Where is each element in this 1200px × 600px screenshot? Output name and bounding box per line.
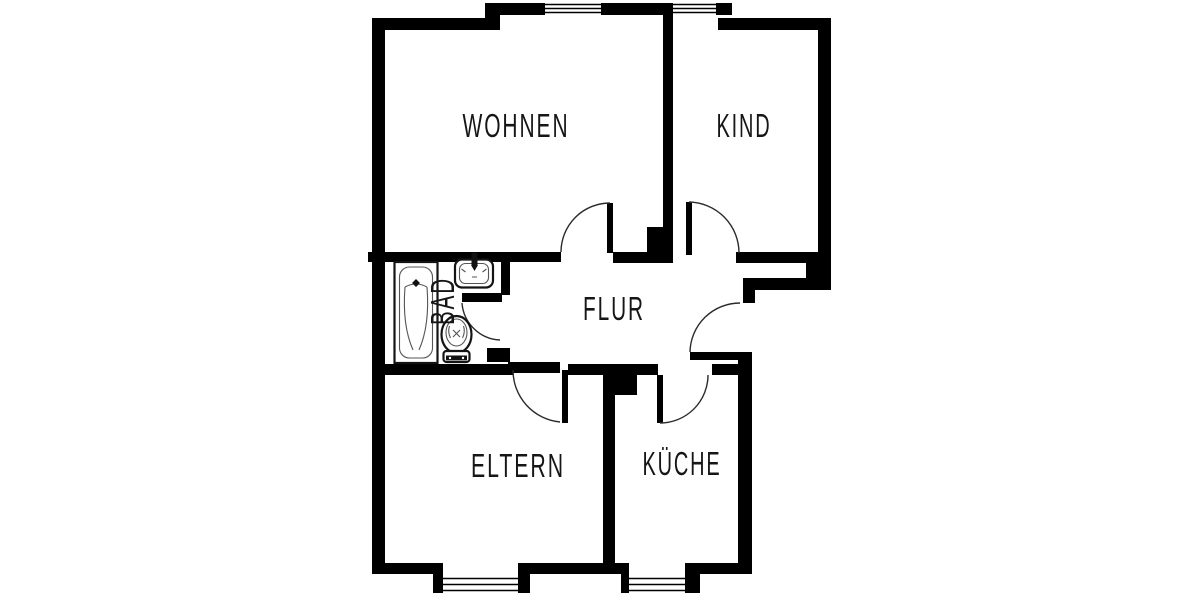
wall-outer-right-kind (818, 18, 831, 263)
floorplan-svg: WOHNENKINDFLURELTERNKÜCHEBAD (0, 0, 1200, 600)
wall-top-bay-mid (601, 3, 672, 15)
room-label-kind: KIND (717, 107, 772, 144)
door-arc-kueche (660, 375, 708, 423)
wall-divider-block (647, 227, 673, 263)
door-arc-kind (689, 202, 739, 253)
wall-kueche-corner-block (615, 375, 637, 395)
wall-divider-eltern-kueche (603, 364, 615, 574)
room-label-eltern: ELTERN (471, 447, 565, 484)
door-leaf-bad (462, 293, 502, 302)
door-arc-eltern (513, 370, 560, 422)
door-leaf-kueche (657, 375, 663, 423)
wall-bad-door-jamb-a (487, 348, 510, 362)
wall-flur-top-mid (613, 252, 647, 263)
room-label-flur: FLUR (583, 290, 645, 327)
door-arc-entry (690, 303, 740, 352)
wall-top-bay-left (485, 3, 545, 15)
toilet-base-dot-left (449, 357, 451, 359)
room-label-bad: BAD (424, 277, 461, 325)
wall-entry-niche-bottom (743, 278, 831, 290)
door-leaf-eltern (562, 370, 568, 423)
wall-top-bay-right (716, 3, 732, 15)
room-label-wohnen: WOHNEN (463, 107, 570, 144)
wall-flur-bottom-right (712, 364, 742, 375)
room-label-kueche: KÜCHE (643, 445, 722, 482)
wall-bottom-c (700, 563, 752, 574)
door-arc-wohnen (561, 203, 610, 252)
wall-outer-left (372, 18, 385, 574)
toilet-base-dot-right (462, 357, 464, 359)
window-jamb-eltern-left (433, 563, 443, 593)
door-leaf-entry (690, 352, 742, 360)
window-jamb-eltern-right (518, 563, 530, 593)
wall-bottom-a (372, 563, 433, 574)
wall-sink-nook (501, 252, 510, 295)
wall-bad-door-jamb-b (508, 362, 560, 373)
sink-tap (472, 253, 478, 266)
wall-kind-bottom (736, 252, 806, 263)
door-leaf-kind (686, 202, 692, 255)
wall-kueche-right (738, 352, 752, 574)
wall-top-right (718, 18, 823, 30)
wall-bottom-b (530, 563, 622, 574)
window-jamb-kueche-right (685, 563, 700, 593)
wall-entry-step (743, 290, 755, 303)
wall-eltern-top (372, 364, 513, 375)
window-jamb-kueche-left (621, 563, 629, 593)
floorplan-canvas: WOHNENKINDFLURELTERNKÜCHEBAD (0, 0, 1200, 600)
wall-divider-wohnen-kind (663, 3, 673, 228)
wall-top-left (372, 18, 498, 30)
door-leaf-wohnen (607, 203, 613, 253)
